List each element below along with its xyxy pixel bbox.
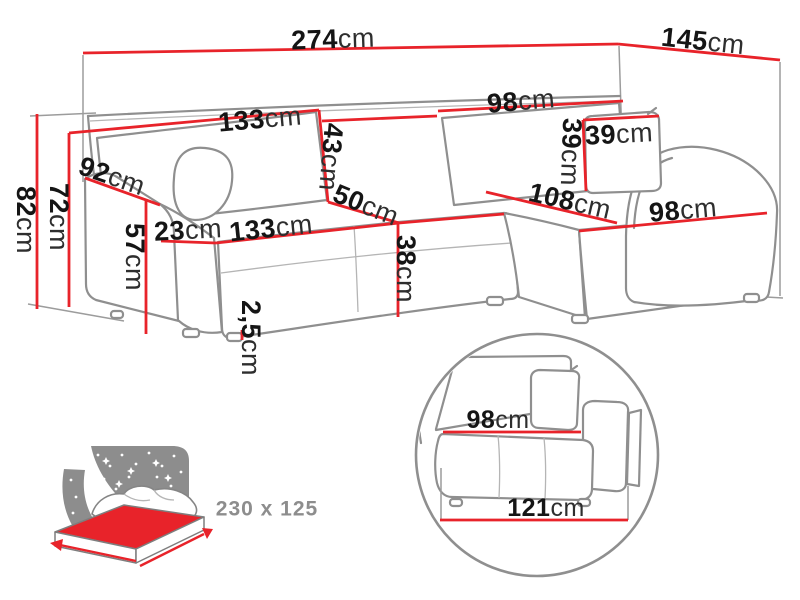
chaise-inner-face bbox=[504, 213, 585, 318]
detail-pillow bbox=[531, 370, 579, 430]
dim-armrest-height-label: 57cm bbox=[120, 223, 150, 291]
detail-view: 98cm 121cm bbox=[416, 334, 658, 576]
dim-chaise-width-label: 98cm bbox=[648, 192, 718, 228]
detail-seat-depth-label: 98cm bbox=[466, 406, 529, 434]
detail-foot bbox=[450, 499, 462, 506]
dim-backrest-right-label: 98cm bbox=[486, 83, 556, 119]
dim-total-height-label: 82cm bbox=[11, 186, 41, 254]
detail-base-width-label: 121cm bbox=[507, 494, 585, 522]
dim-line-backrest-mid bbox=[322, 116, 437, 121]
dim-armrest-width-label: 23cm bbox=[153, 213, 223, 247]
sofa-dimension-diagram: 274cm 145cm 133cm 43cm 98cm 39cm 39cm 92… bbox=[0, 0, 800, 600]
dim-seat-height-label: 38cm bbox=[391, 235, 421, 303]
dim-total-width-label: 274cm bbox=[291, 23, 376, 56]
dim-backrest-top-height-label: 72cm bbox=[44, 183, 74, 251]
dim-cushion-height-label: 39cm bbox=[555, 117, 587, 186]
dim-total-depth-label: 145cm bbox=[660, 22, 746, 61]
sleeping-area-label: 230 x 125 bbox=[216, 498, 318, 521]
dim-cushion-width-label: 39cm bbox=[584, 117, 654, 151]
dim-leg-height-label: 2,5cm bbox=[236, 300, 266, 376]
detail-seat bbox=[435, 434, 593, 500]
sofa-bed-icon: 230 x 125 bbox=[50, 446, 318, 566]
